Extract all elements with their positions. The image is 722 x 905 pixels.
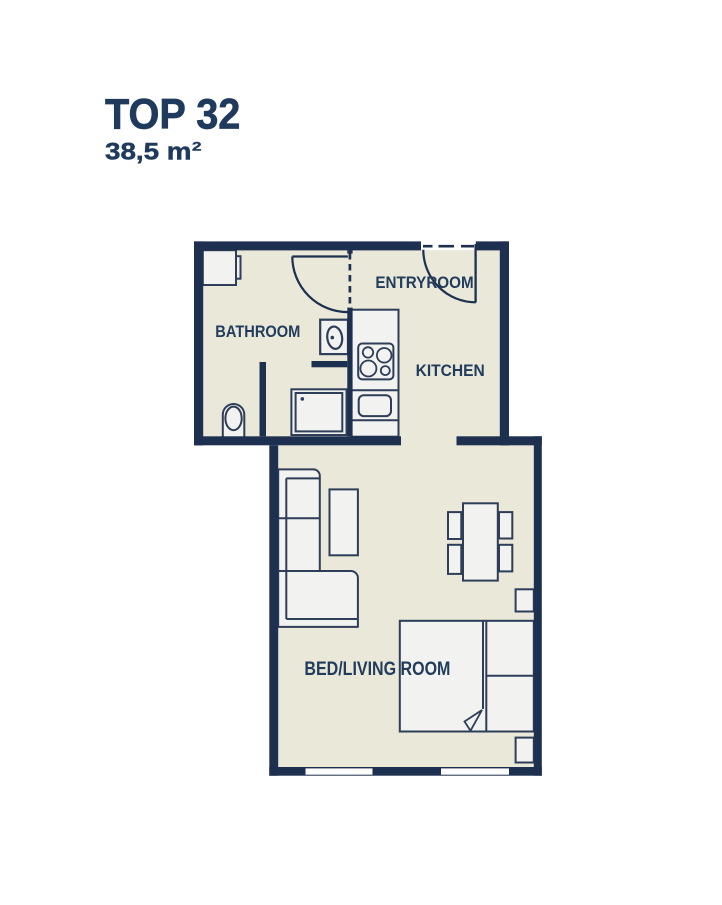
- svg-text:TOP 32: TOP 32: [105, 91, 240, 139]
- svg-text:ENTRYROOM: ENTRYROOM: [375, 273, 473, 292]
- svg-text:38,5 m: 38,5 m: [105, 138, 192, 165]
- svg-text:KITCHEN: KITCHEN: [416, 361, 485, 380]
- svg-text:BATHROOM: BATHROOM: [215, 322, 300, 341]
- svg-text:BED/LIVING ROOM: BED/LIVING ROOM: [304, 658, 450, 680]
- svg-text:2: 2: [192, 140, 202, 154]
